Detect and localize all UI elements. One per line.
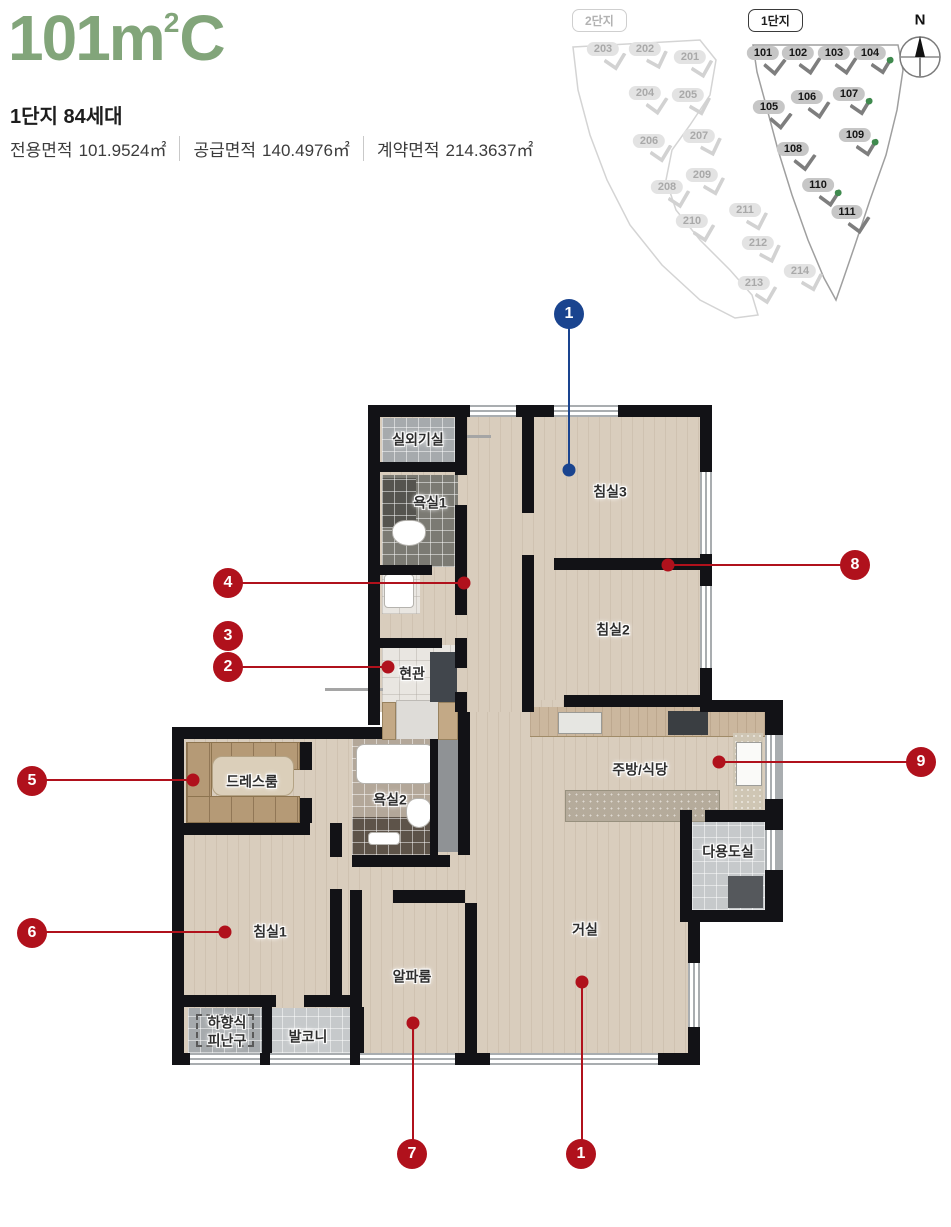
marker-8: 8 <box>840 550 870 580</box>
wall <box>680 810 692 922</box>
wall <box>465 903 477 1065</box>
site-map: N 2단지 1단지 203202201204205206207208209210… <box>560 0 951 330</box>
entry-cabinet <box>382 702 396 740</box>
window <box>490 1053 658 1065</box>
washbasin <box>368 832 400 845</box>
wall <box>184 995 276 1007</box>
room-label: 다용도실 <box>702 843 754 861</box>
title-superscript: 2 <box>164 7 180 38</box>
marker-dot <box>187 774 200 787</box>
window <box>700 472 712 554</box>
building-label-204: 204 <box>629 86 661 100</box>
building-label-111: 111 <box>831 205 862 219</box>
area-label: 전용면적 <box>10 136 73 161</box>
window <box>765 735 783 799</box>
area-item: 계약면적214.3637㎡ <box>363 136 533 161</box>
marker-dot <box>662 559 675 572</box>
marker-line <box>581 982 583 1154</box>
window <box>470 405 516 417</box>
marker-line <box>32 779 193 781</box>
wall <box>368 405 712 417</box>
marker-dot <box>458 577 471 590</box>
room-label: 욕실2 <box>373 791 407 809</box>
wall <box>300 742 312 770</box>
marker-line <box>568 314 570 470</box>
room-label: 욕실1 <box>413 494 447 512</box>
wall <box>393 890 465 903</box>
cooktop <box>668 711 708 735</box>
bathtub <box>356 744 434 784</box>
window <box>700 586 712 668</box>
building-label-103: 103 <box>818 46 850 60</box>
marker-line <box>228 582 464 584</box>
complex2-boundary <box>573 40 758 318</box>
compass-north-label: N <box>915 12 926 29</box>
room-label: 침실3 <box>593 483 627 501</box>
wall <box>522 555 534 712</box>
wall <box>455 638 467 668</box>
wall <box>304 995 352 1007</box>
unit-plan-page: 101m2C 1단지 84세대 전용면적101.9524㎡공급면적140.497… <box>0 0 951 1227</box>
wall <box>330 835 342 857</box>
room-label: 알파룸 <box>393 968 432 986</box>
area-label: 계약면적 <box>377 136 440 161</box>
window <box>765 830 783 870</box>
area-label: 공급면적 <box>193 136 256 161</box>
shoe-cabinet <box>430 652 457 702</box>
building-label-105: 105 <box>753 100 785 114</box>
marker-dot <box>407 1017 420 1030</box>
washbasin <box>384 574 414 608</box>
wall <box>330 823 342 835</box>
room-label: 침실1 <box>253 923 287 941</box>
wall <box>300 798 312 823</box>
marker-dot <box>576 976 589 989</box>
wall <box>330 889 342 995</box>
building-label-106: 106 <box>791 90 823 104</box>
wall <box>455 417 467 475</box>
marker-line <box>412 1023 414 1154</box>
wall <box>455 692 467 712</box>
complex1-label: 1단지 <box>748 9 803 32</box>
complex2-label: 2단지 <box>572 9 627 32</box>
area-item: 공급면적140.4976㎡ <box>179 136 349 161</box>
room-label: 침실2 <box>596 621 630 639</box>
wall <box>262 1007 272 1053</box>
kitchen-sink <box>558 712 602 734</box>
marker-5: 5 <box>17 766 47 796</box>
marker-dot <box>219 926 232 939</box>
building-label-102: 102 <box>782 46 814 60</box>
area-value: 214.3637㎡ <box>446 136 534 161</box>
wall <box>380 462 458 472</box>
room-label: 거실 <box>572 921 598 939</box>
building-label-109: 109 <box>839 128 871 142</box>
washer <box>728 876 763 908</box>
area-value: 101.9524㎡ <box>79 136 167 161</box>
marker-3: 3 <box>213 621 243 651</box>
wall <box>430 739 438 855</box>
wall <box>352 855 450 867</box>
marker-line <box>668 564 855 566</box>
wall <box>458 712 470 855</box>
marker-line <box>719 761 921 763</box>
compass-icon <box>900 36 940 77</box>
area-list: 전용면적101.9524㎡공급면적140.4976㎡계약면적214.3637㎡ <box>10 136 533 161</box>
marker-9: 9 <box>906 747 936 777</box>
wall <box>368 405 380 725</box>
building-label-107: 107 <box>833 87 865 101</box>
marker-2: 2 <box>213 652 243 682</box>
wall <box>380 638 442 648</box>
room-label: 현관 <box>399 665 425 683</box>
wall <box>350 890 362 1065</box>
window <box>360 1053 455 1065</box>
building-label-203: 203 <box>587 42 619 56</box>
marker-line <box>32 931 225 933</box>
refrigerator <box>736 742 762 786</box>
wall <box>522 413 534 513</box>
toilet <box>392 520 426 546</box>
marker-1: 1 <box>566 1139 596 1169</box>
window <box>190 1053 260 1065</box>
wall <box>680 910 783 922</box>
room-label: 실외기실 <box>392 431 444 449</box>
window <box>554 405 618 417</box>
kitchen-island <box>565 790 720 822</box>
building-label-108: 108 <box>777 142 809 156</box>
toilet <box>406 798 432 828</box>
wall <box>172 727 382 739</box>
building-label-104: 104 <box>854 46 886 60</box>
building-label-110: 110 <box>802 178 834 192</box>
marker-dot <box>382 661 395 674</box>
room-label: 하향식 피난구 <box>208 1015 247 1050</box>
page-title: 101m2C <box>8 6 224 70</box>
window <box>270 1053 350 1065</box>
marker-6: 6 <box>17 918 47 948</box>
duct-shaft <box>438 740 458 852</box>
marker-7: 7 <box>397 1139 427 1169</box>
marker-dot <box>713 756 726 769</box>
dressroom-shelf-bottom <box>186 796 300 823</box>
marker-1-blue: 1 <box>554 299 584 329</box>
marker-dot <box>563 464 576 477</box>
door-swing-line <box>463 435 491 438</box>
wall <box>455 505 467 615</box>
floor-plan: 실외기실욕실1침실3침실2현관드레스룸욕실2주방/식당다용도실침실1알파룸거실하… <box>170 400 795 1070</box>
room-label: 드레스룸 <box>226 773 278 791</box>
building-label-101: 101 <box>747 46 779 60</box>
complex-subtitle: 1단지 84세대 <box>10 100 123 129</box>
area-item: 전용면적101.9524㎡ <box>10 136 166 161</box>
window <box>688 963 700 1027</box>
wall <box>172 727 184 1065</box>
room-label: 발코니 <box>289 1028 328 1046</box>
marker-line <box>228 666 388 668</box>
wall <box>184 823 310 835</box>
area-value: 140.4976㎡ <box>262 136 350 161</box>
wall <box>564 695 700 707</box>
marker-4: 4 <box>213 568 243 598</box>
wall <box>705 810 783 822</box>
wall <box>380 565 432 575</box>
room-label: 주방/식당 <box>612 761 667 779</box>
entry-step <box>396 700 440 740</box>
building-label-206: 206 <box>633 134 665 148</box>
